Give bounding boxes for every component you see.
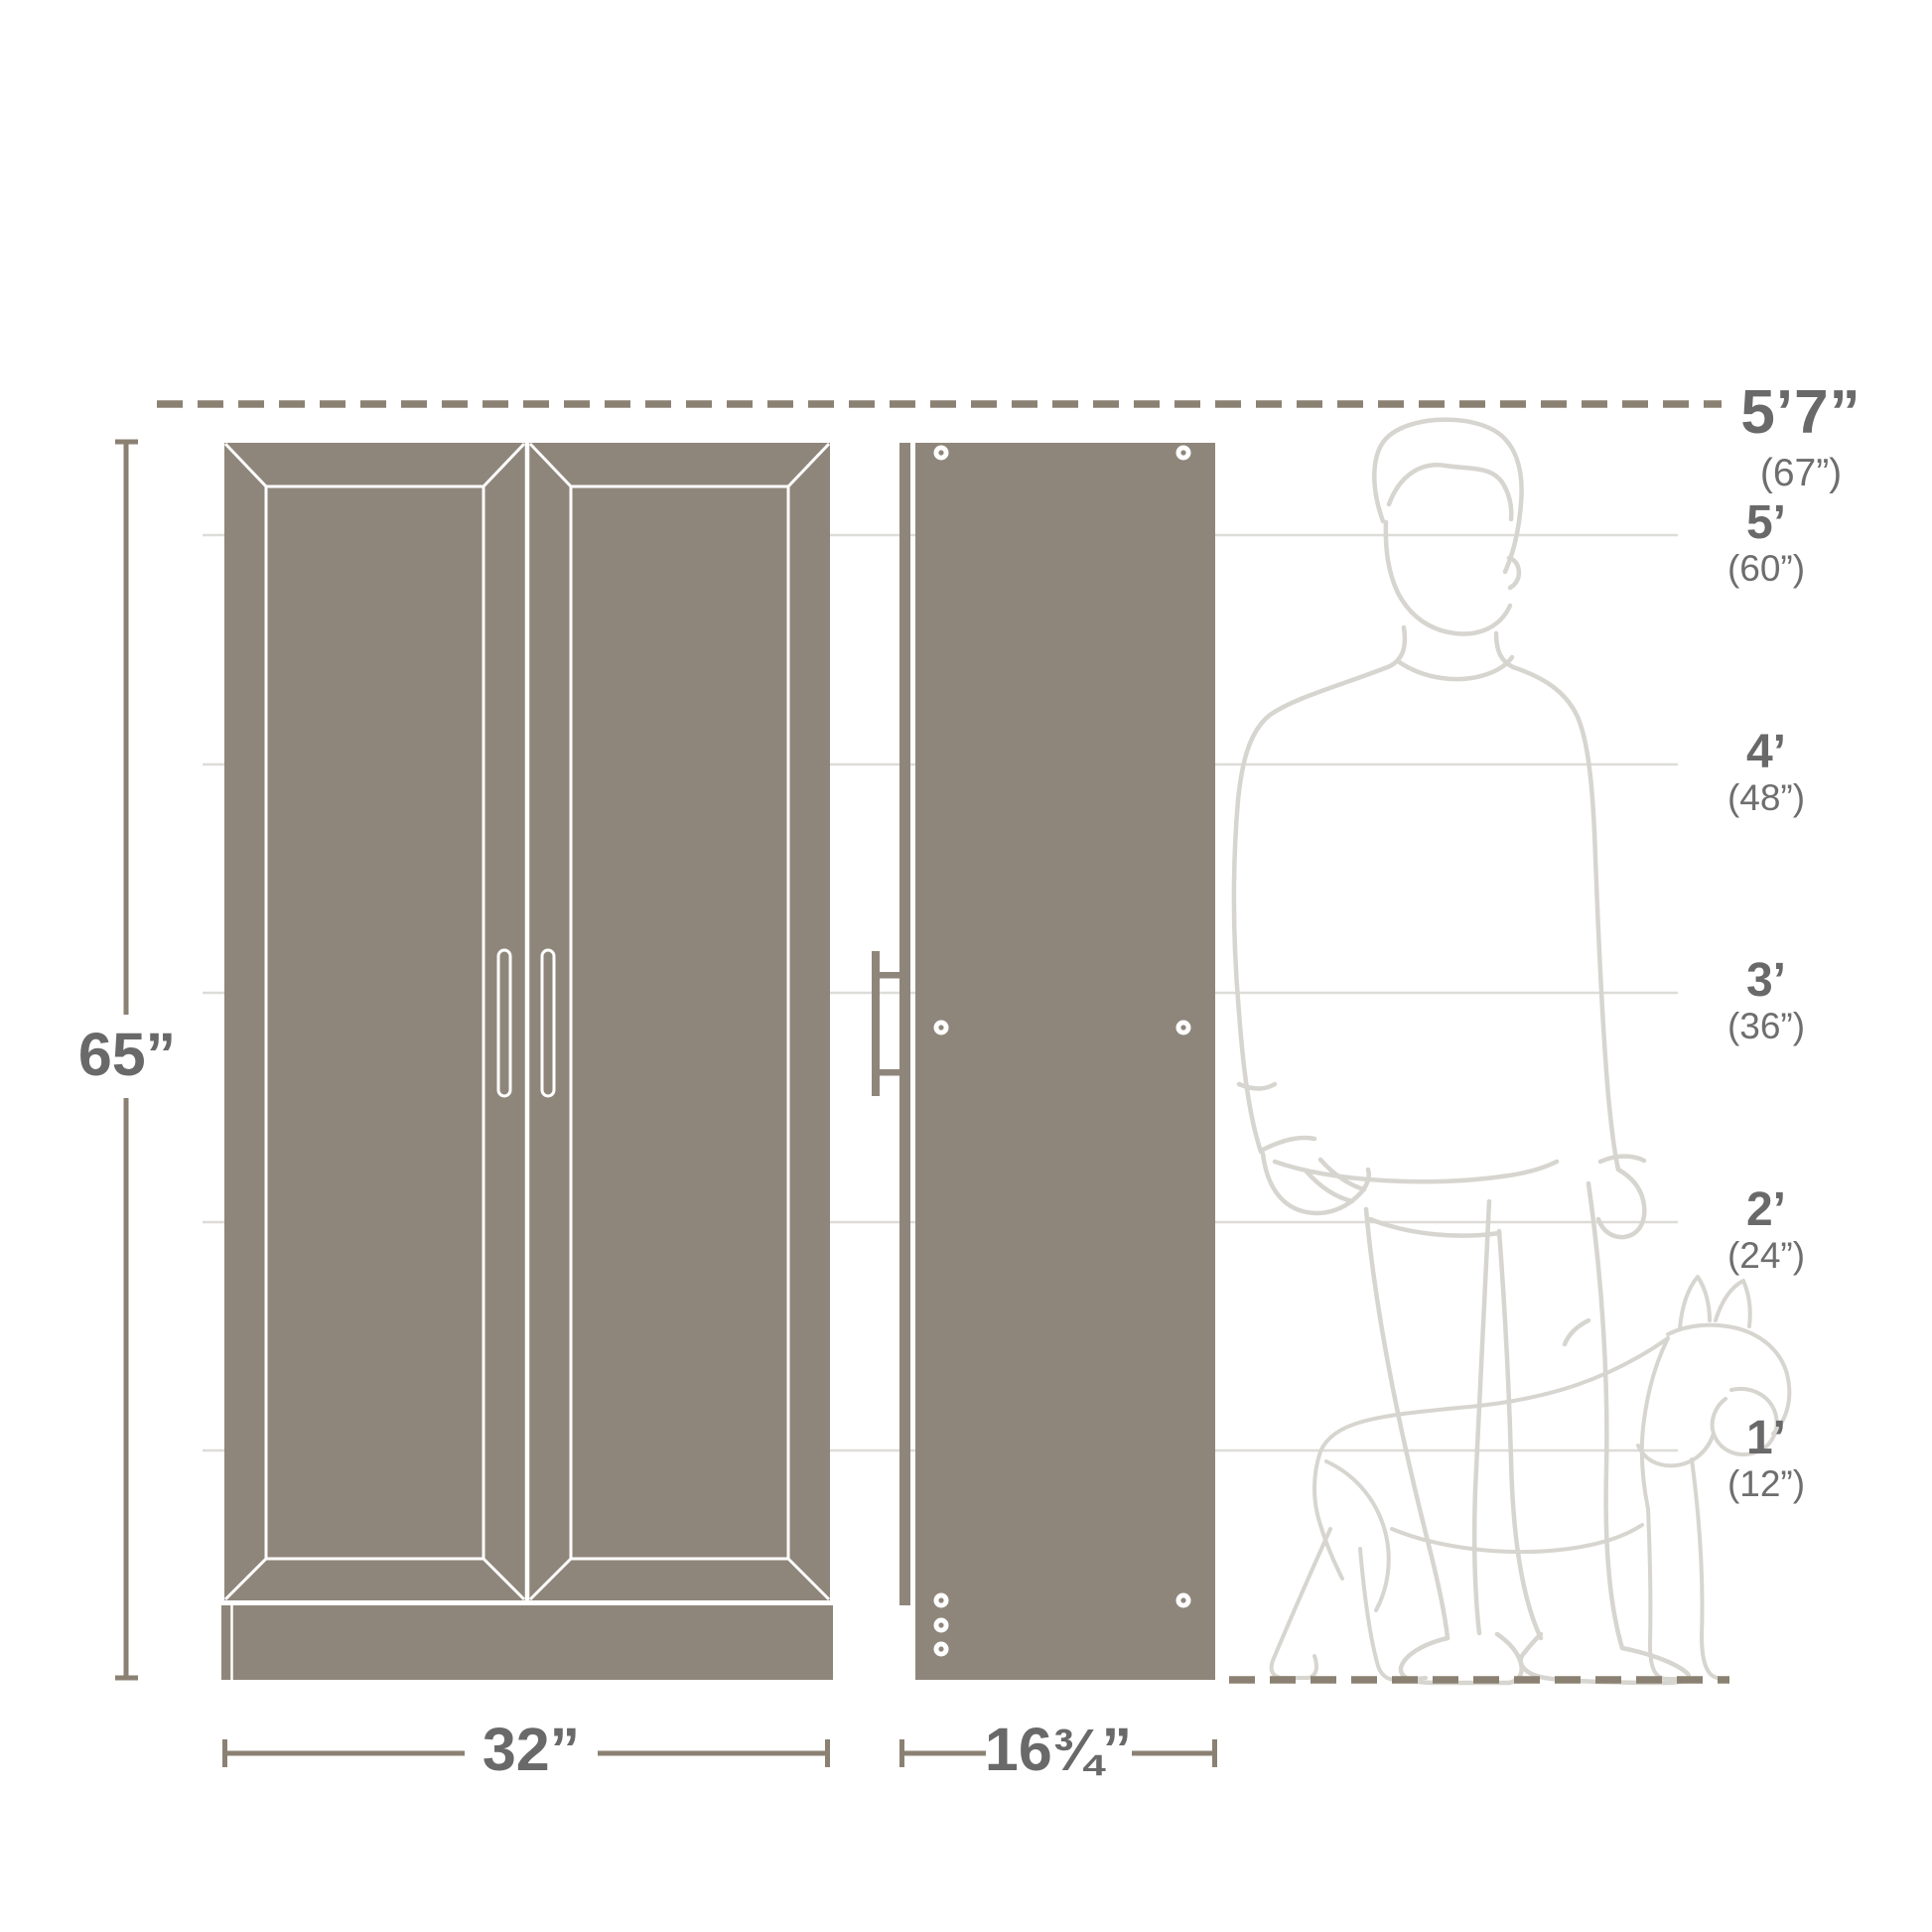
dog-right-ear [1716,1281,1750,1326]
person-hair-outline [1374,420,1521,572]
person-left-arm [1234,627,1405,1152]
dog-back-topline [1320,1338,1668,1451]
side-panel-body [915,443,1215,1680]
person-collar [1398,657,1512,679]
scale-label-3ft: 3’ [1667,957,1865,1005]
side-handle-post-top [880,972,899,979]
product-dimensions-diagram: 5’7” (67”) 5’ (60”) 4’ (48”) 3’ (36”) 2’… [0,0,1932,1932]
scale-label-2ft: 2’ [1667,1186,1865,1234]
width-dimension-label: 32” [432,1720,630,1780]
depth-label-fraction: ¾ [1052,1717,1102,1783]
cam-hole [934,1642,949,1657]
person-shirt-hem [1275,1162,1557,1181]
scale-label-4ft-inches: (48”) [1667,779,1865,816]
diagram-graphics [0,0,1932,1932]
person-right-arm [1496,633,1618,1170]
side-handle-post-bottom [880,1069,899,1076]
person-back-leg [1588,1183,1622,1648]
person-elbow-crease [1239,1084,1275,1089]
depth-label-number: 16 [985,1716,1052,1783]
cabinet-base-plinth [221,1605,833,1680]
side-view-panel [872,443,1215,1680]
scale-label-5ft-inches: (60”) [1667,550,1865,587]
side-door-edge [899,443,910,1605]
cam-hole [934,1593,949,1608]
scale-label-1ft-inches: (12”) [1667,1465,1865,1502]
scale-label-4ft: 4’ [1667,729,1865,776]
person-front-shoe [1401,1634,1522,1683]
height-dimension-label: 65” [28,1025,226,1085]
dog-chest [1642,1338,1668,1509]
dog-hind-leg-far [1360,1549,1426,1680]
cam-hole [934,446,949,461]
dog-thigh [1326,1461,1389,1610]
scale-label-top-feet: 5’7” [1702,382,1900,444]
dog-front-leg-near [1648,1509,1694,1679]
scale-label-top-inches: (67”) [1702,454,1900,493]
person-silhouette [1234,420,1689,1683]
dog-left-ear [1680,1277,1710,1328]
scale-label-1ft: 1’ [1667,1415,1865,1462]
person-face [1386,522,1510,633]
person-hair-fringe [1389,465,1511,519]
scale-label-5ft: 5’ [1667,499,1865,547]
cam-hole [1176,446,1191,461]
cam-hole [934,1618,949,1633]
person-front-leg [1366,1209,1448,1638]
depth-dimension-label: 16¾” [959,1720,1158,1780]
scale-label-2ft-inches: (24”) [1667,1237,1865,1274]
side-handle-bar [872,951,880,1096]
side-handle [872,951,899,1096]
person-back-leg-inseam [1499,1231,1541,1638]
person-left-cuff [1263,1138,1314,1150]
dog-hind-leg-near [1272,1529,1330,1678]
cam-hole [934,1021,949,1035]
scale-label-3ft-inches: (36”) [1667,1008,1865,1044]
cam-hole [1176,1593,1191,1608]
depth-label-unit: ” [1102,1716,1133,1783]
front-view-cabinet [221,443,833,1680]
person-knee-crease [1565,1320,1588,1344]
person-right-cuff [1600,1157,1644,1162]
person-right-hand [1598,1170,1644,1237]
person-front-leg-inseam [1474,1201,1489,1633]
person-back-shoe [1521,1634,1689,1683]
cam-hole [1176,1021,1191,1035]
